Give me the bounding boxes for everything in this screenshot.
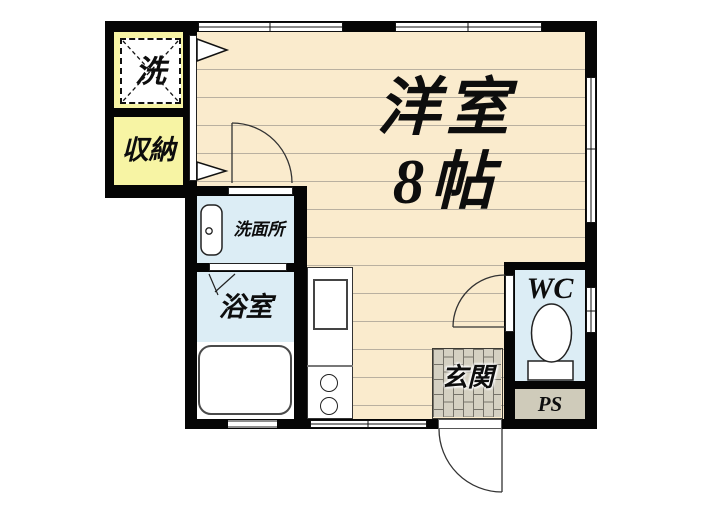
- washroom-doorway: [228, 187, 293, 195]
- bathroom-label: 浴室: [197, 272, 294, 342]
- wall-washer-storage: [114, 108, 183, 117]
- washer-space-label: 洗: [120, 38, 181, 104]
- floor-plan: 洋室 8帖 洗 収納 洗面所 浴室 WC PS: [0, 0, 720, 512]
- stove-burner-icon: [320, 397, 338, 415]
- wall-washblock-right: [294, 186, 307, 429]
- pipe-space-label: PS: [515, 389, 585, 419]
- counter-divider: [307, 365, 353, 367]
- window-top-right: [395, 22, 542, 32]
- wall-wc-top: [504, 262, 585, 270]
- wall-left: [105, 21, 114, 198]
- main-room-label: 洋室 8帖: [318, 72, 574, 219]
- storage-label: 収納: [114, 116, 183, 185]
- wc-label: WC: [515, 273, 585, 305]
- bathtub-icon: [198, 345, 292, 415]
- window-top-left: [198, 22, 343, 32]
- entrance-label: 玄関: [432, 358, 503, 398]
- wall-wc-ps: [504, 381, 585, 389]
- main-room-name: 洋室: [318, 72, 574, 146]
- window-right-wc: [586, 287, 596, 333]
- entry-door-sill: [438, 419, 502, 429]
- wall-washblock-left: [185, 186, 197, 429]
- bathroom-doorway: [209, 263, 287, 271]
- washroom-label: 洗面所: [224, 219, 294, 239]
- main-room-size: 8帖: [318, 146, 574, 220]
- door-swing-entry: [439, 429, 502, 492]
- kitchen-sink-icon: [313, 279, 348, 330]
- wc-doorway: [505, 275, 514, 332]
- window-bottom: [310, 420, 427, 428]
- closet-door-panel: [189, 35, 197, 181]
- stove-burner-icon: [320, 374, 338, 392]
- window-bathroom: [228, 420, 277, 428]
- window-right-main: [586, 77, 596, 223]
